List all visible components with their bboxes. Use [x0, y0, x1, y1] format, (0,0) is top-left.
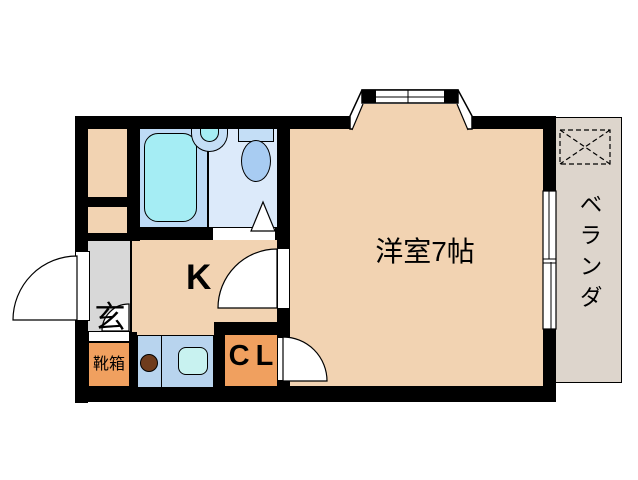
wall-right-lower	[543, 328, 556, 402]
toilet-bowl-icon	[241, 140, 271, 182]
balcony-label: ベランダ	[572, 192, 606, 316]
kitchen-label: K	[186, 258, 211, 298]
bay-window	[350, 90, 472, 130]
wall-bathroom-left	[127, 116, 140, 240]
wall-kitchen-room-low	[277, 380, 290, 402]
wall-top-left	[75, 116, 352, 129]
kitchen-sink-icon	[178, 347, 208, 375]
counter-divider	[161, 335, 162, 388]
kitchen-room-door-leaf	[277, 248, 290, 309]
closet-label: CL	[225, 340, 283, 373]
wall-compartment-divider	[88, 197, 127, 207]
wall-right-upper	[543, 116, 556, 192]
stove-burner-icon	[140, 354, 158, 372]
storage-compartment-lower	[88, 207, 127, 233]
wall-entrance-top	[88, 233, 140, 241]
balcony-sliding-window	[543, 191, 556, 329]
shoebox-label: 靴箱	[86, 350, 132, 374]
bathroom-door-opening	[213, 228, 275, 240]
floorplan-canvas: 洋室7帖 K 玄 靴箱 CL ベランダ	[0, 0, 638, 480]
wall-bottom	[75, 386, 556, 402]
storage-compartment-upper	[88, 129, 127, 197]
wall-closet-top	[214, 322, 290, 335]
entrance-door-arc	[13, 256, 77, 320]
western-room-label: 洋室7帖	[355, 230, 495, 270]
entrance-label: 玄	[88, 292, 132, 337]
wall-bathroom-right	[277, 116, 290, 250]
bathtub-icon	[144, 133, 197, 222]
